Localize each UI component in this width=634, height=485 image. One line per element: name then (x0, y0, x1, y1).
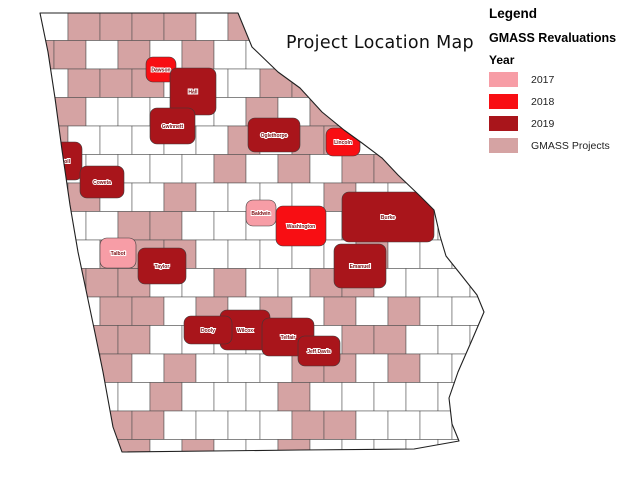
county-cell (54, 212, 86, 241)
county-cell (388, 411, 420, 440)
county-cell (420, 126, 452, 155)
county-cell (132, 12, 164, 41)
legend-item-2018: 2018 (489, 94, 634, 109)
county-cell (36, 354, 68, 383)
legend-item-label: 2017 (531, 74, 554, 86)
county-cell (388, 69, 420, 98)
county-cell (196, 126, 228, 155)
county-cell (292, 411, 324, 440)
county-cell (484, 354, 490, 383)
county-cell (470, 98, 490, 127)
county-cell (182, 41, 214, 70)
county-cell (470, 326, 490, 355)
county-cell (118, 212, 150, 241)
county-cell (22, 269, 54, 298)
county-cell (420, 354, 452, 383)
county-cell (214, 269, 246, 298)
county-label-washington: Washington (287, 224, 315, 230)
county-cell (182, 440, 214, 469)
county-cell (196, 411, 228, 440)
county-cells: DawsonHallGwinnettOglethorpeLincolnCarro… (22, 12, 490, 468)
county-cell (100, 69, 132, 98)
county-cell (214, 98, 246, 127)
county-cell (324, 69, 356, 98)
county-cell (150, 326, 182, 355)
county-cell (452, 354, 484, 383)
county-cell (118, 440, 150, 469)
county-cell (278, 383, 310, 412)
county-cell (86, 440, 118, 469)
county-cell (356, 354, 388, 383)
county-cell (420, 411, 452, 440)
county-cell (118, 41, 150, 70)
county-cell (196, 183, 228, 212)
county-cell (196, 354, 228, 383)
county-cell (356, 297, 388, 326)
county-cell (182, 269, 214, 298)
county-cell (420, 69, 452, 98)
county-cell (118, 98, 150, 127)
county-cell (470, 212, 490, 241)
county-cell (470, 155, 490, 184)
county-label-baldwin: Baldwin (251, 211, 270, 217)
county-cell (22, 41, 54, 70)
legend-item-2017: 2017 (489, 72, 634, 87)
county-cell (484, 240, 490, 269)
county-cell (100, 12, 132, 41)
legend-swatch-2018 (489, 94, 518, 109)
county-cell (374, 440, 406, 469)
county-cell (484, 297, 490, 326)
county-cell (86, 383, 118, 412)
county-cell (36, 183, 68, 212)
county-cell (86, 41, 118, 70)
county-label-lincoln: Lincoln (334, 140, 352, 146)
county-label-burke: Burke (381, 215, 395, 221)
legend-swatch-gmass-projects (489, 138, 518, 153)
legend-item-label: 2018 (531, 96, 554, 108)
county-cell (356, 411, 388, 440)
county-label-emanuel: Emanuel (350, 264, 371, 270)
map-container: DawsonHallGwinnettOglethorpeLincolnCarro… (0, 0, 490, 480)
county-cell (22, 98, 54, 127)
county-cell (22, 326, 54, 355)
county-cell (196, 12, 228, 41)
map-title: Project Location Map (286, 33, 474, 53)
legend: Legend GMASS Revaluations Year 2017 2018… (489, 6, 634, 160)
county-cell (374, 383, 406, 412)
county-cell (260, 411, 292, 440)
county-cell (54, 383, 86, 412)
county-cell (438, 383, 470, 412)
county-cell (324, 411, 356, 440)
county-cell (182, 155, 214, 184)
county-cell (388, 240, 420, 269)
county-cell (438, 212, 470, 241)
county-cell (54, 269, 86, 298)
county-cell (374, 98, 406, 127)
county-cell (214, 383, 246, 412)
county-cell (246, 269, 278, 298)
county-cell (164, 12, 196, 41)
county-cell (246, 155, 278, 184)
county-cell (36, 297, 68, 326)
county-cell (68, 12, 100, 41)
county-label-gwinnett: Gwinnett (162, 124, 184, 130)
county-cell (246, 440, 278, 469)
county-label-taylor: Taylor (155, 264, 170, 270)
county-cell (54, 41, 86, 70)
county-cell (214, 440, 246, 469)
georgia-county-map: DawsonHallGwinnettOglethorpeLincolnCarro… (0, 0, 490, 480)
county-cell (68, 240, 100, 269)
legend-subheading: GMASS Revaluations (489, 31, 634, 45)
county-cell (406, 440, 438, 469)
county-cell (150, 155, 182, 184)
county-cell (452, 69, 484, 98)
county-cell (54, 98, 86, 127)
county-cell (470, 269, 490, 298)
county-cell (406, 326, 438, 355)
county-cell (150, 383, 182, 412)
county-cell (406, 269, 438, 298)
county-label-coweta: Coweta (93, 180, 111, 186)
legend-item-gmass-projects: GMASS Projects (489, 138, 634, 153)
county-cell (36, 411, 68, 440)
county-label-dooly: Dooly (201, 328, 215, 334)
county-cell (484, 411, 490, 440)
county-label-telfair: Telfair (281, 335, 296, 341)
county-cell (22, 383, 54, 412)
county-cell (100, 297, 132, 326)
county-cell (260, 69, 292, 98)
county-cell (438, 269, 470, 298)
county-cell (68, 297, 100, 326)
county-cell (68, 69, 100, 98)
county-cell (484, 183, 490, 212)
county-cell (214, 155, 246, 184)
county-cell (182, 212, 214, 241)
county-cell (324, 297, 356, 326)
county-cell (420, 240, 452, 269)
county-cell (164, 411, 196, 440)
county-cell (228, 240, 260, 269)
county-cell (406, 98, 438, 127)
county-cell (132, 297, 164, 326)
county-cell (214, 41, 246, 70)
county-cell (164, 354, 196, 383)
county-label-wilcox: Wilcox (237, 328, 253, 334)
county-cell (150, 212, 182, 241)
county-cell (22, 155, 54, 184)
county-cell (438, 155, 470, 184)
county-cell (118, 326, 150, 355)
county-cell (420, 297, 452, 326)
county-cell (100, 126, 132, 155)
county-cell (452, 183, 484, 212)
legend-item-label: 2019 (531, 118, 554, 130)
county-cell (36, 240, 68, 269)
county-cell (278, 155, 310, 184)
county-cell (452, 240, 484, 269)
county-cell (292, 69, 324, 98)
county-cell (388, 126, 420, 155)
county-cell (342, 155, 374, 184)
legend-item-label: GMASS Projects (531, 140, 610, 152)
county-label-oglethorpe: Oglethorpe (261, 133, 288, 139)
county-cell (132, 354, 164, 383)
county-cell (388, 297, 420, 326)
county-cell (342, 440, 374, 469)
county-cell (260, 354, 292, 383)
county-cell (406, 383, 438, 412)
county-cell (86, 269, 118, 298)
county-cell (22, 440, 54, 469)
county-cell (310, 155, 342, 184)
county-cell (374, 326, 406, 355)
county-cell (228, 411, 260, 440)
county-cell (452, 126, 484, 155)
county-cell (246, 383, 278, 412)
county-cell (228, 354, 260, 383)
county-cell (342, 383, 374, 412)
county-cell (438, 98, 470, 127)
county-cell (100, 354, 132, 383)
county-cell (86, 326, 118, 355)
county-cell (406, 155, 438, 184)
county-cell (86, 98, 118, 127)
county-cell (68, 411, 100, 440)
county-label-hall: Hall (188, 89, 198, 95)
county-cell (182, 383, 214, 412)
county-label-carroll: Carroll (54, 159, 71, 165)
county-cell (214, 212, 246, 241)
county-cell (342, 326, 374, 355)
county-cell (54, 326, 86, 355)
county-cell (68, 354, 100, 383)
legend-item-2019: 2019 (489, 116, 634, 131)
county-cell (118, 383, 150, 412)
county-cell (470, 383, 490, 412)
county-cell (132, 183, 164, 212)
legend-heading: Legend (489, 6, 634, 21)
county-cell (54, 440, 86, 469)
county-cell (36, 69, 68, 98)
county-cell (310, 383, 342, 412)
county-label-talbot: Talbot (111, 251, 126, 257)
county-cell (150, 440, 182, 469)
county-cell (228, 69, 260, 98)
county-cell (22, 212, 54, 241)
county-cell (164, 183, 196, 212)
legend-swatch-2017 (489, 72, 518, 87)
county-cell (310, 440, 342, 469)
county-cell (356, 69, 388, 98)
county-cell (86, 212, 118, 241)
county-cell (196, 240, 228, 269)
county-cell (470, 440, 490, 469)
legend-year-label: Year (489, 53, 634, 67)
county-label-dawson: Dawson (151, 67, 170, 73)
county-cell (342, 98, 374, 127)
county-cell (278, 269, 310, 298)
legend-swatch-2019 (489, 116, 518, 131)
county-cell (278, 440, 310, 469)
county-cell (388, 354, 420, 383)
county-label-jeff-davis: Jeff Davis (307, 349, 331, 355)
county-cell (132, 411, 164, 440)
county-cell (438, 326, 470, 355)
county-cell (310, 98, 342, 127)
